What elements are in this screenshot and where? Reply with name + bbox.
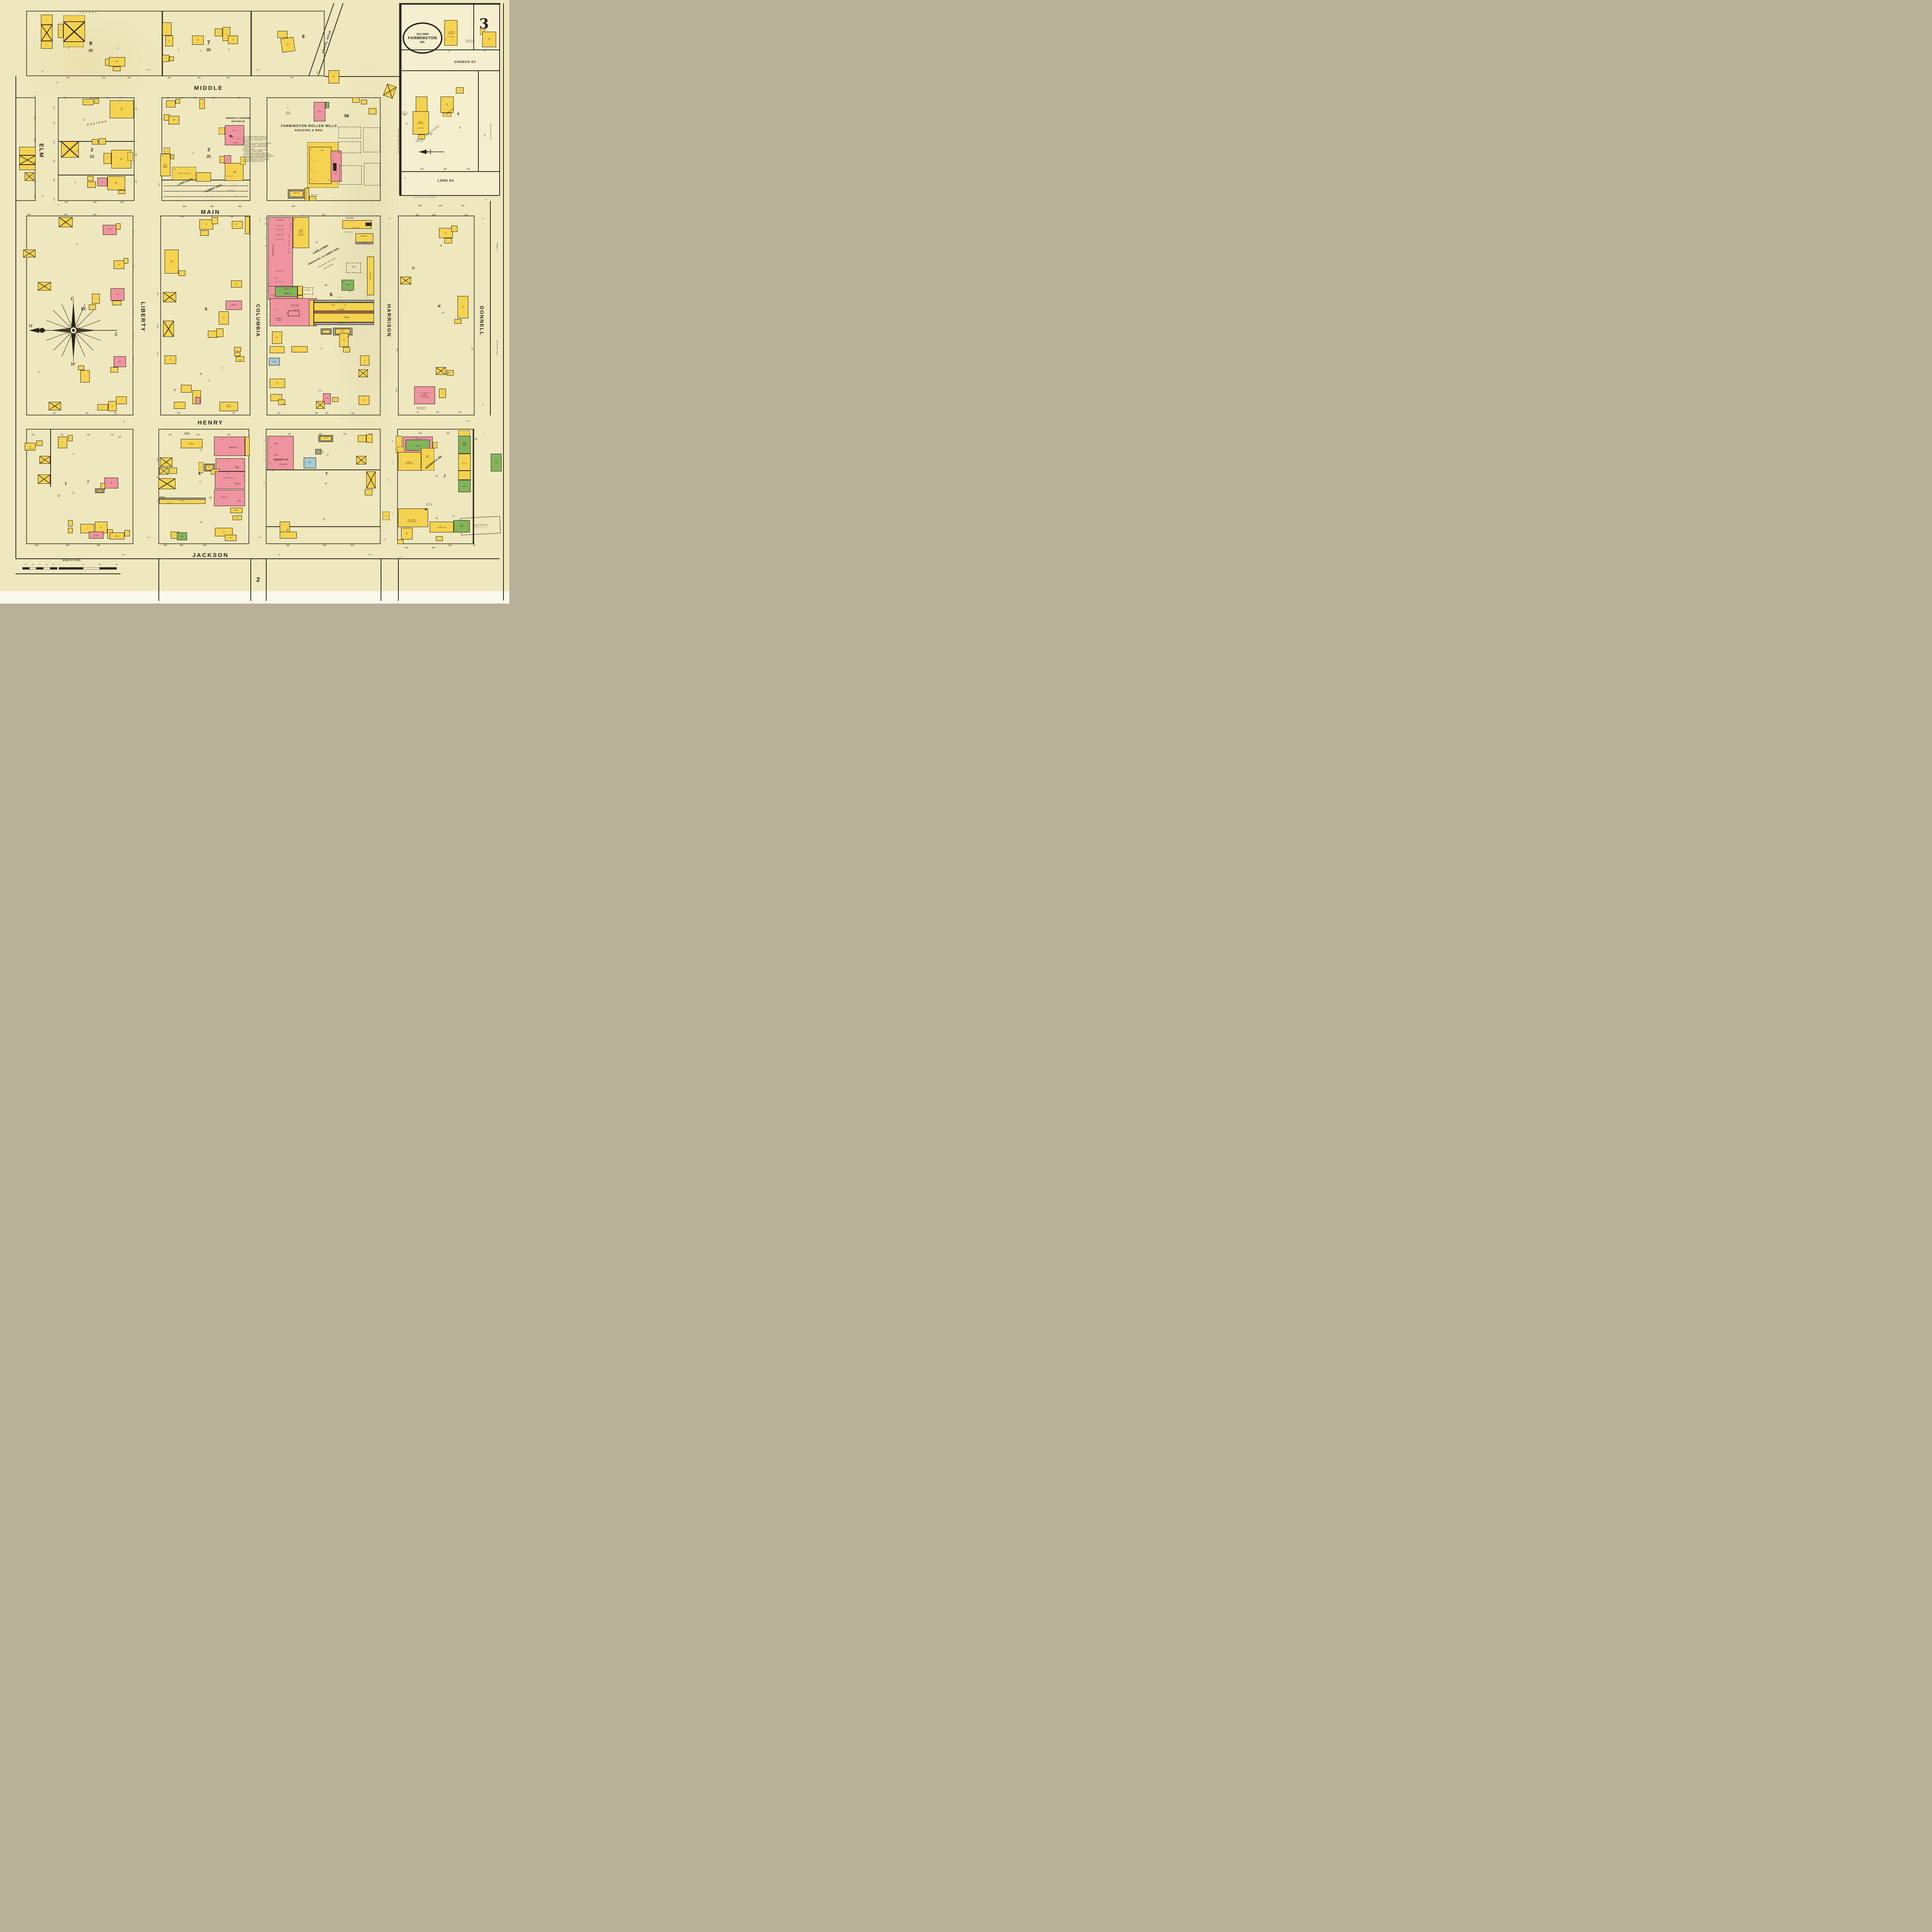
label-4: 4 <box>311 168 312 170</box>
label-3: 3 <box>117 47 118 49</box>
label-no-expos-beyond: NO EXPOS. BEYOND <box>414 197 436 199</box>
map-line <box>15 558 500 559</box>
label-v-a-c-a-n-t: v a c a n t. <box>80 12 98 14</box>
label-30: 30' <box>404 444 405 446</box>
label-701: 701 <box>53 412 56 415</box>
label-813: 813 <box>449 544 452 547</box>
building-1: 1½ <box>383 512 389 520</box>
building <box>361 100 367 104</box>
label-5: 5 <box>264 439 265 441</box>
label-814: 814 <box>93 214 96 216</box>
building <box>245 216 250 234</box>
building <box>339 165 362 185</box>
label-barber: Barber. <box>234 510 238 511</box>
label-36: 36 <box>435 517 438 520</box>
label-drive: DRIVE. <box>228 190 235 192</box>
label-2: 2 <box>269 451 270 453</box>
label-723: 723 <box>343 433 346 435</box>
label-carr-ge: Carr'ge. <box>180 536 184 537</box>
building-w-ho: W.Ho. <box>314 102 325 121</box>
label-r: R <box>87 480 89 483</box>
label-201: 201 <box>420 168 423 170</box>
label-gro: Gro. <box>235 283 238 285</box>
label-off: Off. <box>274 309 276 311</box>
building-d: D <box>109 57 125 66</box>
building <box>314 300 374 303</box>
map-line <box>381 558 381 601</box>
scale-tick-50: 50 <box>82 564 84 566</box>
label-811: 811 <box>461 205 464 207</box>
scale-bar-segment <box>29 567 36 570</box>
label-lumber: Lumber <box>337 308 345 311</box>
label-705: 705 <box>197 77 201 79</box>
label-bl-sm: Bl.Sm. <box>271 294 275 296</box>
label-9: 9 <box>282 214 283 216</box>
label-50: 50' <box>399 556 401 558</box>
label-8: 8 <box>264 482 265 484</box>
label-801: 801 <box>65 201 68 204</box>
label-806: 806 <box>238 206 241 208</box>
label-26: 26 <box>325 483 327 485</box>
label-410: 410 <box>106 97 109 99</box>
label-15: 15 <box>207 379 209 381</box>
label-1: 1 <box>178 48 179 51</box>
building-1: 1 <box>433 442 437 448</box>
label-2: (2) <box>207 155 211 159</box>
label-lime: Lime W.Ho. <box>495 461 497 464</box>
building <box>118 190 125 194</box>
building <box>212 217 218 224</box>
building-1: 1 <box>162 22 172 36</box>
label-11: 11 <box>157 476 159 478</box>
label-6: 6½ <box>349 290 351 292</box>
building <box>309 147 332 184</box>
building <box>234 352 240 356</box>
label-lime: Lime. <box>463 485 466 487</box>
building-1: 1 <box>215 29 223 36</box>
label-506: 506 <box>396 348 398 351</box>
label-iron: IRON <box>338 323 344 324</box>
map-line <box>473 429 474 545</box>
label-712: 712 <box>436 412 439 414</box>
building-d: D <box>401 528 413 539</box>
label-g: G <box>119 435 121 439</box>
building-d: D <box>328 70 339 83</box>
building-1: 1 <box>418 134 425 139</box>
label-808: 808 <box>286 544 289 547</box>
label-50: 50' <box>452 39 453 41</box>
label-iron-clad: IRON CLAD <box>361 242 367 243</box>
building-d: D <box>360 355 369 366</box>
building <box>270 346 284 353</box>
label-w-rm-hay-loft: W. Rm. & Hay Loft <box>178 173 190 174</box>
label-56: 56' <box>123 421 125 423</box>
label-9: 9 <box>161 117 162 120</box>
building-d: D <box>339 333 349 347</box>
label-820: 820 <box>432 214 435 216</box>
label-726: 726 <box>446 432 449 435</box>
building <box>359 369 368 377</box>
label-long-av: LONG AV. <box>437 179 455 182</box>
label-ir-cl: (IR.CL.) <box>98 490 101 492</box>
label-4: 4 <box>392 440 393 442</box>
label-ir-cl: IR.CL. <box>208 467 211 468</box>
scale-bar-segment <box>36 567 43 570</box>
label-508: 508 <box>135 153 137 156</box>
label-504: 504 <box>132 311 134 314</box>
building-1: 1 <box>439 389 446 398</box>
label-mill-y: Mill'y. <box>274 442 278 444</box>
label-3: 3 <box>311 158 312 160</box>
building <box>113 66 121 71</box>
label-giessing-bro: GIESSING & BRO. <box>294 129 323 132</box>
building-2: 2 <box>158 478 175 489</box>
label-print-g: Print'g. <box>272 361 276 363</box>
label-open: OPEN <box>331 304 335 306</box>
label-12-12: 12 12 <box>286 313 289 315</box>
building-1: 1 <box>245 437 250 456</box>
label-off: Off. <box>236 517 238 519</box>
map-line <box>400 195 500 196</box>
building-d: D <box>107 176 125 190</box>
label-512: 512 <box>156 458 158 461</box>
building <box>196 397 200 404</box>
label-iron: IRON <box>337 297 344 298</box>
building <box>454 319 461 324</box>
label-56-16: 56'-16' <box>466 420 470 422</box>
building-1: 1 <box>458 471 471 480</box>
label-wall-1st-only: WALL 1ST ONLY. <box>276 239 284 240</box>
building-m-e-church-2nd-tenement-1st-: M. E. CHURCH. 2ND Tenement. 1st 24' TO E… <box>414 386 435 404</box>
label-33: 33 <box>447 372 449 374</box>
label-18: 18 <box>200 521 202 524</box>
label-church-st: CHURCH ST. <box>454 60 477 64</box>
label-708: 708½ <box>318 390 322 392</box>
label-hand-pump: HAND PUMP & 150' 2½" HOSE. <box>291 304 299 307</box>
label-wooden-conveyor: WOODEN CONVEYOR <box>306 188 307 200</box>
building <box>314 313 374 322</box>
label-409: 409 <box>90 97 93 99</box>
building-kitch-1: Kitch. 1 <box>304 457 316 468</box>
label-56: 56' <box>388 218 390 220</box>
label-12: 12 <box>76 243 78 245</box>
building <box>68 528 73 533</box>
building <box>163 292 176 302</box>
label-805: 805 <box>211 206 214 208</box>
label-719: 719 <box>196 434 199 436</box>
map-line <box>50 429 51 487</box>
label-l: L <box>221 366 223 369</box>
label-819: 819 <box>416 214 419 216</box>
north-arrow-icon <box>417 149 445 155</box>
label-bottl-g-1st: Bottl'g. 1st <box>233 142 239 144</box>
label-804: 804 <box>164 544 167 547</box>
building-1: 1 <box>58 24 63 38</box>
label-jackson: JACKSON <box>192 552 229 559</box>
label-off: Off. <box>327 180 330 181</box>
label-coal: Coal Shed. <box>426 455 429 458</box>
label-dwg-s: Dwg's <box>496 243 498 252</box>
label-6: 6 <box>211 215 212 218</box>
label-markert-ho: MARKERT HO. <box>274 459 289 461</box>
label-717: 717 <box>111 434 114 436</box>
label-66: 66' <box>404 177 406 179</box>
label-710: 710 <box>351 412 354 415</box>
label-415: 415 <box>212 97 215 99</box>
map-line <box>164 196 248 197</box>
label-wagon-shop-1st: Wagon Shop 1st <box>272 245 274 257</box>
label-o: O <box>58 494 60 497</box>
label-409: 409 <box>53 159 55 162</box>
label-up-blr: UP.BLR. 16 HP. <box>230 136 235 139</box>
label-809: 809 <box>323 544 326 547</box>
label-lumber: Lumber 10' <box>351 266 356 269</box>
label-heat-stoves: HEAT: STOVES LIGHTS: OIL. <box>415 139 424 143</box>
label-no-exposure-beyond: NO EXPOSURE BEYOND <box>398 129 399 153</box>
label-8: 8 <box>302 34 305 39</box>
building-2: 2 <box>224 155 231 164</box>
label-811: 811 <box>405 547 408 549</box>
label-meat: Meat. <box>274 454 279 456</box>
building <box>325 102 329 108</box>
label-1: 1½ <box>294 219 296 220</box>
label-1: 1½ <box>446 39 447 41</box>
label-50: 50' <box>41 196 43 197</box>
label-w-ho-1st: W. Ho. 1ST <box>276 234 283 236</box>
label-2: 2 <box>269 438 270 440</box>
label-3: 3 <box>83 118 85 121</box>
map-title-oval: Oct.1900 FARMINGTON MO. <box>403 22 442 54</box>
label-b-s: B & S. <box>235 483 241 485</box>
building-d: D <box>199 219 213 230</box>
label-1: 1 <box>418 98 419 100</box>
label-62-7: 62'-7' <box>258 537 262 539</box>
label-main: MAIN <box>201 209 220 216</box>
label-sal: Sal. <box>230 537 232 539</box>
label-3: 3 <box>484 134 485 137</box>
label-capy-100-bbls-per-day-fuel: CAPY. 100 BBLS. PER DAY. FUEL:- WOOD. HE… <box>243 136 274 162</box>
building-1: 1 <box>456 87 464 94</box>
building-d: D <box>281 37 296 53</box>
label-2: 2 <box>91 147 94 153</box>
label-14-to-eaves: 14' TO EAVES <box>447 36 454 37</box>
building <box>116 223 121 230</box>
building-1: 1 <box>38 282 51 291</box>
label-w-rm-2d: W.Rm 2d <box>221 497 228 498</box>
map-line <box>503 3 504 600</box>
scale-tick-150: 150 <box>116 564 118 566</box>
building-1: 1 <box>104 153 111 164</box>
label-16: 16 <box>475 437 478 440</box>
label-401: 401 <box>34 196 36 199</box>
label-16: 16' <box>473 545 475 547</box>
label-off: Off. <box>321 149 323 151</box>
label-gro: Gro. <box>235 223 238 225</box>
label-ir-cl: IR. CL. W.Ho. <box>341 330 344 332</box>
label-gen-l-s: Gen'l. S. <box>229 446 238 449</box>
building-d: D <box>114 356 126 367</box>
label-35: 35' <box>485 199 487 201</box>
building-1: 1 <box>80 370 90 383</box>
label-12: 12 <box>265 245 266 247</box>
building-d: D <box>228 36 238 44</box>
label-14: 14 <box>267 291 268 293</box>
label-202: 202 <box>444 168 447 170</box>
scale-bar-segment <box>100 567 117 570</box>
label-n: N <box>173 389 176 392</box>
label-56-16: 56'-16' <box>122 554 126 556</box>
building <box>169 56 174 61</box>
map-state: MO. <box>420 41 425 44</box>
label-2-undert-kr: 2 Undert'kr. <box>276 219 283 221</box>
label-wall-1st-only: WALL 1ST ONLY. <box>276 229 284 230</box>
label-1: 1 <box>65 481 67 486</box>
building <box>436 536 443 541</box>
label-802: 802 <box>94 201 97 204</box>
label-7: 7 <box>325 471 328 476</box>
label-incline: INCLINE. <box>304 289 310 291</box>
building <box>332 397 338 402</box>
label-sal: Sal. <box>235 466 239 468</box>
building <box>277 31 287 38</box>
label-26: 26' <box>270 314 272 316</box>
scale-bar-segment <box>50 567 57 570</box>
building <box>365 489 372 495</box>
label-grain-elev-r: Grain Elev'r. <box>293 192 299 194</box>
label-scales: SCALES <box>160 497 165 498</box>
building <box>364 163 380 185</box>
building-d: D <box>366 434 372 443</box>
building-d: D <box>439 228 453 238</box>
building <box>436 367 446 375</box>
label-716: 716 <box>87 434 90 436</box>
building <box>111 367 118 372</box>
label-11: 11 <box>265 238 266 240</box>
label-no-exposure: NO EXPOSURE <box>490 123 492 140</box>
label-1: (1) <box>90 155 94 159</box>
label-eng-25-hp: ENG. 25 HP <box>353 227 360 229</box>
label-10: 10 <box>265 218 266 220</box>
label-2: 2 <box>200 49 201 52</box>
building-1: 1½ <box>165 355 176 364</box>
label-6: 6 <box>89 40 92 47</box>
building <box>338 141 361 153</box>
building-2: 2 <box>159 468 168 474</box>
building <box>451 226 457 232</box>
label-elm: ELM <box>38 143 45 158</box>
map-line <box>164 185 248 186</box>
label-wood: Wood Workg Shop. <box>463 442 466 447</box>
label-27: 27 <box>327 454 329 456</box>
map-line <box>398 558 399 601</box>
label-w-ho: W.Ho. <box>344 316 350 319</box>
label-w-ho: W. Ho. <box>294 309 299 311</box>
label-50: 50' <box>482 404 484 406</box>
label-36: 36' <box>314 180 315 182</box>
building <box>289 191 303 197</box>
building-1: 1 <box>97 178 107 186</box>
building-1: 1 <box>309 300 314 326</box>
label-15: 15 <box>267 304 268 306</box>
label-703: 703 <box>127 77 130 79</box>
scale-tick-50: 50 <box>25 564 27 566</box>
building-1: 1½ <box>61 141 79 158</box>
label-812: 812 <box>27 214 31 216</box>
building-1: 1 <box>416 97 427 113</box>
label-715: 715 <box>60 434 63 436</box>
label-405: 405 <box>34 116 36 119</box>
label-50: 50' <box>41 71 43 73</box>
label-w-ho: W.Ho. <box>189 442 194 444</box>
label-821: 821 <box>465 214 468 216</box>
label-k: K <box>438 304 440 309</box>
building <box>291 346 308 352</box>
label-13: 13 <box>267 283 268 285</box>
building-1: 1½ <box>160 457 172 467</box>
label-w-rm-2d: W.Rm. 2d <box>416 438 422 440</box>
label-2: 2' <box>483 434 485 436</box>
label-32: 32' <box>57 204 59 206</box>
label-15: 15½ <box>347 336 350 338</box>
building <box>314 322 374 325</box>
building <box>174 402 185 409</box>
label-503: 503 <box>132 334 134 337</box>
label-storage-1-2d: Storage 1.2d <box>290 223 292 229</box>
building <box>352 97 359 103</box>
building <box>87 176 94 181</box>
building <box>25 172 34 181</box>
building-1: 1 <box>199 99 205 109</box>
building <box>112 301 121 305</box>
label-10: 10 <box>37 371 39 372</box>
label-16: 16 <box>267 314 268 316</box>
label-drive: DRIVE. <box>227 175 234 177</box>
label-810: 810 <box>439 205 442 207</box>
building <box>78 366 84 370</box>
label-708: 708 <box>63 97 66 99</box>
label-701: 701 <box>66 77 70 79</box>
label-805: 805 <box>180 544 183 547</box>
label-60-to: 60' TO SMALL FR. BARN. <box>402 111 408 116</box>
scale-tick-30: 30 <box>39 564 41 566</box>
label-502: 502 <box>132 358 134 361</box>
label-plan-g-mill: Plan'g Mill. <box>360 235 367 237</box>
label-804: 804 <box>183 206 186 208</box>
label-j: J <box>443 474 446 478</box>
map-line <box>399 3 401 196</box>
building <box>175 99 180 104</box>
map-line <box>266 558 267 601</box>
label-720: 720 <box>227 434 230 436</box>
label-wall-1st-only: WALL 1ST ONLY. <box>275 270 283 272</box>
building-1: 1 <box>63 15 85 22</box>
label-donnell: DONNELL <box>479 306 485 336</box>
building <box>383 84 396 99</box>
label-ir-cl: (IR. CL.) <box>180 500 185 502</box>
building <box>124 258 128 264</box>
building-d: D <box>110 100 134 118</box>
label-26: 26 <box>323 518 325 520</box>
label-50: 50' <box>314 170 315 172</box>
building-1: 1 <box>19 147 36 155</box>
label-5: 5 <box>392 461 393 463</box>
building-1: 1 <box>87 182 96 188</box>
building <box>216 328 223 337</box>
label-414: 414 <box>194 97 197 99</box>
label-810: 810 <box>351 544 354 547</box>
label-w-ho: W. Ho. <box>232 130 237 132</box>
map-line <box>15 76 16 559</box>
